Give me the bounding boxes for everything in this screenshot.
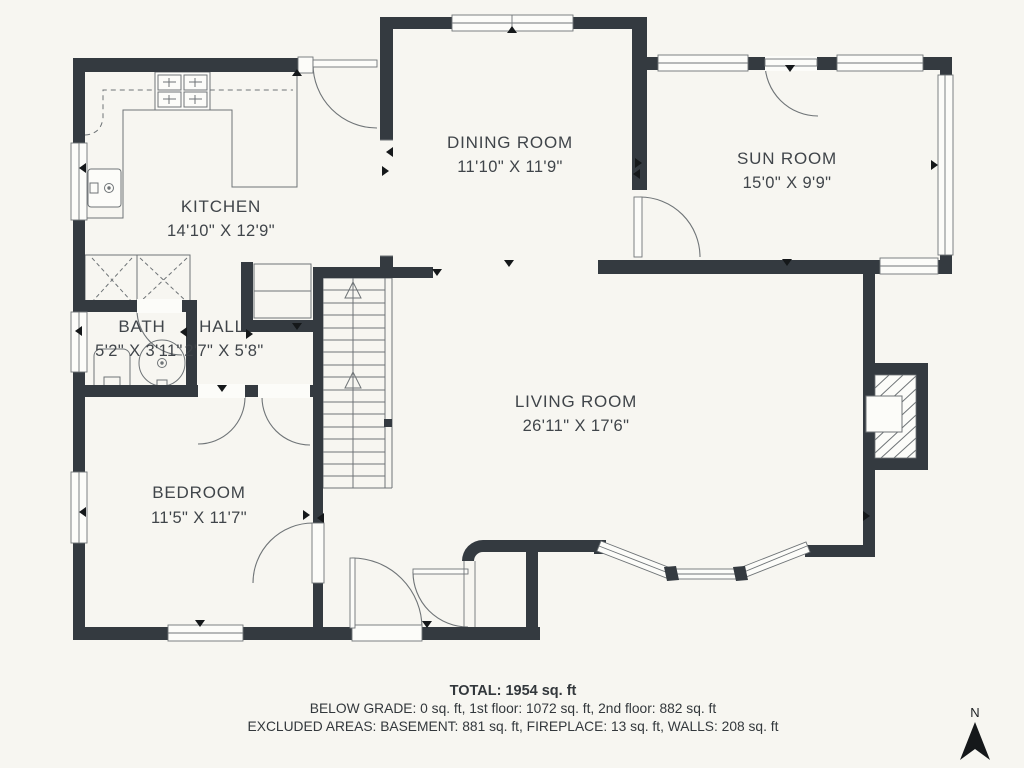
summary-excluded: EXCLUDED AREAS: BASEMENT: 881 sq. ft, FI… bbox=[248, 719, 779, 734]
staircase bbox=[323, 278, 392, 488]
bath-window bbox=[71, 312, 87, 372]
room-label-hall: HALL bbox=[199, 317, 245, 336]
kitchen-dining-door-arc bbox=[313, 64, 377, 128]
hall-closet bbox=[254, 264, 311, 318]
kitchen-dining-door-leaf bbox=[313, 60, 377, 67]
floorplan-page: KITCHEN 14'10" X 12'9" DINING ROOM 11'10… bbox=[0, 0, 1024, 768]
entry-door-arc bbox=[352, 558, 422, 628]
kitchen-window bbox=[71, 143, 87, 220]
room-dims-bath: 5'2" X 3'11" bbox=[95, 342, 183, 360]
sunroom-exterior-door-leaf bbox=[765, 59, 817, 66]
bedroom-south-window bbox=[168, 625, 243, 641]
room-dims-kitchen: 14'10" X 12'9" bbox=[167, 222, 275, 240]
room-label-living: LIVING ROOM bbox=[515, 392, 637, 411]
room-label-bedroom: BEDROOM bbox=[152, 483, 245, 502]
bay-post bbox=[664, 566, 679, 581]
bedroom-west-window bbox=[71, 472, 87, 543]
sunroom-north-window-left bbox=[658, 55, 748, 71]
room-label-sunroom: SUN ROOM bbox=[737, 149, 837, 168]
floorplan-canvas: KITCHEN 14'10" X 12'9" DINING ROOM 11'10… bbox=[0, 0, 1024, 768]
entry-closet-door-leaf bbox=[413, 569, 468, 574]
room-dims-hall: 2'7" X 5'8" bbox=[184, 342, 263, 360]
kitchen-door-jamb bbox=[298, 57, 313, 73]
entry-door-leaf bbox=[350, 558, 355, 628]
bedroom-east-door-arc bbox=[253, 523, 313, 583]
room-label-dining: DINING ROOM bbox=[447, 133, 573, 152]
north-compass: N bbox=[960, 705, 990, 760]
kitchen-closets bbox=[85, 255, 190, 305]
bay-window-left bbox=[597, 541, 673, 579]
bay-window-center bbox=[669, 569, 741, 579]
entry-door-opening bbox=[352, 625, 422, 641]
sunroom-west-door-arc bbox=[640, 197, 700, 257]
sunroom-west-door-leaf bbox=[634, 197, 642, 257]
sunroom-south-window bbox=[880, 258, 938, 274]
bath-door-opening bbox=[137, 299, 182, 313]
bay-window-right bbox=[737, 542, 810, 579]
bedroom-closet-door-arc bbox=[262, 397, 310, 445]
summary-total: TOTAL: 1954 sq. ft bbox=[450, 683, 577, 699]
stove-icon bbox=[155, 72, 210, 110]
room-labels: KITCHEN 14'10" X 12'9" DINING ROOM 11'10… bbox=[95, 133, 837, 527]
sunroom-north-window-right bbox=[837, 55, 923, 71]
kitchen-fixtures bbox=[85, 72, 297, 305]
summary-floors: BELOW GRADE: 0 sq. ft, 1st floor: 1072 s… bbox=[310, 701, 717, 716]
room-label-bath: BATH bbox=[118, 317, 165, 336]
opening-jambs bbox=[380, 140, 475, 627]
sunroom-east-window bbox=[938, 75, 953, 255]
bedroom-closet-door-opening bbox=[258, 384, 310, 398]
firebox bbox=[866, 396, 902, 432]
room-dims-bedroom: 11'5" X 11'7" bbox=[151, 509, 247, 527]
room-dims-dining: 11'10" X 11'9" bbox=[457, 158, 563, 176]
kitchen-sink-icon bbox=[88, 169, 121, 207]
room-dims-living: 26'11" X 17'6" bbox=[523, 417, 630, 435]
room-dims-sunroom: 15'0" X 9'9" bbox=[743, 174, 832, 192]
area-summary: TOTAL: 1954 sq. ft BELOW GRADE: 0 sq. ft… bbox=[248, 683, 779, 734]
bedroom-hall-door-arc bbox=[198, 397, 245, 444]
north-arrow-icon bbox=[960, 722, 990, 760]
north-label: N bbox=[970, 705, 979, 720]
room-label-kitchen: KITCHEN bbox=[181, 197, 261, 216]
bedroom-east-door-opening bbox=[312, 523, 324, 583]
